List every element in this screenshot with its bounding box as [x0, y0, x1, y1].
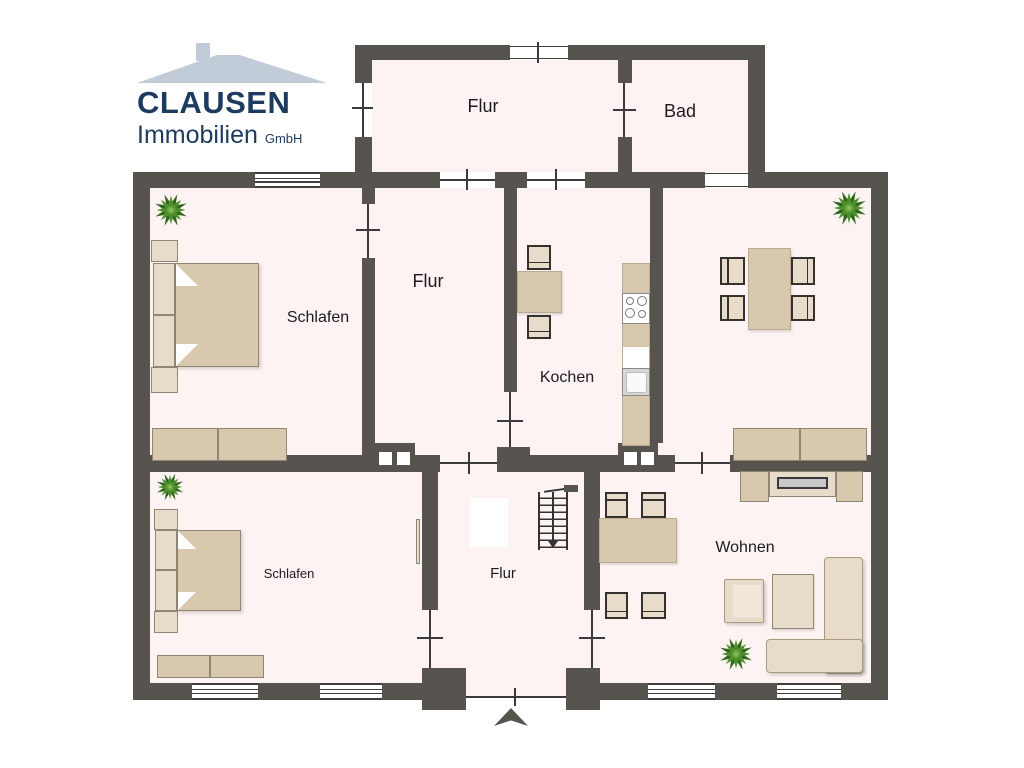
nightstand — [154, 509, 178, 530]
plant-icon — [155, 472, 185, 502]
bed-pillow — [153, 315, 175, 367]
wall-segment — [530, 455, 618, 472]
door-tick — [613, 109, 636, 111]
sideboard — [800, 428, 867, 461]
wall-segment — [658, 455, 675, 472]
chimney-flue — [641, 452, 654, 465]
window — [255, 172, 320, 188]
kitchen-chair — [527, 245, 551, 270]
armchair — [724, 579, 764, 623]
stove — [622, 293, 650, 324]
room-label-schlafen-bottom: Schlafen — [249, 566, 329, 581]
wall-segment — [355, 45, 510, 60]
radiator — [416, 519, 420, 564]
sofa-l-horizontal — [766, 639, 863, 673]
dining-chair — [720, 257, 745, 285]
logo-brand-line: Immobilien GmbH — [137, 121, 302, 150]
chimney-flue — [624, 452, 637, 465]
logo-suffix-text: GmbH — [265, 131, 303, 146]
wall-segment — [504, 188, 517, 392]
dining-table — [748, 248, 791, 330]
sofa-bench — [152, 428, 218, 461]
logo-roof-icon — [137, 55, 327, 83]
stairs-center-line — [552, 492, 554, 542]
sofa-bench — [210, 655, 264, 678]
plant-icon — [830, 189, 868, 227]
dining-chair — [791, 257, 815, 285]
wall-segment — [258, 683, 320, 700]
nightstand — [151, 240, 178, 262]
room-label-flur-bottom: Flur — [480, 565, 526, 582]
sideboard — [733, 428, 800, 461]
bed-pillow — [155, 570, 177, 611]
wall-segment — [748, 172, 888, 188]
nightstand — [154, 611, 178, 633]
room-label-flur-top: Flur — [438, 96, 528, 117]
wall-segment — [355, 137, 372, 172]
room-label-bad: Bad — [650, 101, 710, 122]
wall-segment — [584, 472, 600, 610]
chimney-flue — [397, 452, 410, 465]
door-tick — [468, 452, 470, 474]
door-tick — [579, 637, 605, 639]
floor-plan-page: CLAUSEN Immobilien GmbH Flur Bad — [0, 0, 1024, 768]
tv-cabinet — [740, 471, 769, 502]
wall-segment — [362, 258, 375, 455]
plant-icon — [153, 192, 189, 228]
wall-junction — [497, 447, 530, 472]
chimney-flue — [379, 452, 392, 465]
wall-segment — [133, 683, 192, 700]
wall-segment — [495, 172, 527, 188]
sink — [622, 368, 650, 396]
wall-left-outer — [133, 172, 150, 700]
door-threshold — [705, 173, 748, 187]
wall-segment — [841, 683, 888, 700]
window-tick — [537, 42, 539, 63]
wall-segment — [600, 683, 648, 700]
dining-chair — [791, 295, 815, 321]
room-label-flur-middle: Flur — [400, 271, 456, 292]
wardrobe — [470, 498, 508, 547]
bed-pillow — [153, 263, 175, 315]
wall-right-outer — [871, 172, 888, 700]
door-tick — [352, 107, 373, 109]
wall-segment — [715, 683, 777, 700]
entry-corner-block — [422, 668, 466, 710]
door-tick — [466, 169, 468, 190]
wall-segment — [618, 58, 632, 83]
door-opening — [429, 610, 431, 668]
nightstand — [151, 367, 178, 393]
sofa-bench — [157, 655, 210, 678]
wall-segment — [320, 172, 440, 188]
counter-worktop — [623, 347, 649, 368]
door-tick — [356, 229, 380, 231]
kitchen-table — [517, 271, 562, 313]
wall-segment — [415, 455, 440, 472]
wohnen-chair — [605, 592, 628, 619]
wohnen-chair — [641, 592, 666, 619]
sofa-bench — [218, 428, 287, 461]
wohnen-chair — [605, 492, 628, 518]
window — [777, 683, 841, 700]
wall-segment — [568, 45, 765, 60]
logo-brand-text: Immobilien — [137, 121, 258, 149]
bed-pillow — [155, 530, 177, 570]
wall-segment — [382, 683, 422, 700]
coffee-table — [772, 574, 814, 629]
door-tick — [417, 637, 443, 639]
wall-segment — [585, 172, 705, 188]
window — [510, 46, 568, 59]
entry-corner-block — [566, 668, 600, 710]
window — [320, 683, 382, 700]
wall-segment — [133, 172, 255, 188]
entrance-arrow-icon — [494, 708, 528, 726]
window — [648, 683, 715, 700]
door-opening — [591, 610, 593, 668]
door-tick — [701, 452, 703, 474]
wall-segment — [618, 137, 632, 172]
stairs-landing-block — [564, 485, 578, 492]
door-opening — [362, 83, 364, 137]
wall-segment — [422, 472, 438, 610]
tv-screen — [777, 477, 828, 489]
wohnen-chair — [641, 492, 666, 518]
plant-icon — [718, 636, 754, 672]
kitchen-chair — [527, 315, 551, 339]
tv-cabinet — [836, 471, 863, 502]
room-label-kochen: Kochen — [537, 369, 597, 387]
wall-segment — [650, 188, 663, 443]
wall-segment — [748, 45, 765, 172]
wohnen-dining-table — [599, 518, 677, 563]
room-label-schlafen-top: Schlafen — [270, 309, 366, 327]
dining-chair — [720, 295, 745, 321]
wall-segment — [362, 188, 375, 204]
room-label-wohnen: Wohnen — [714, 539, 776, 557]
logo-company-name: CLAUSEN — [137, 85, 290, 121]
entry-threshold — [466, 696, 566, 698]
door-tick — [497, 420, 523, 422]
wall-segment — [355, 45, 372, 83]
door-tick — [555, 169, 557, 190]
door-opening — [367, 204, 369, 258]
company-logo: CLAUSEN Immobilien GmbH — [120, 35, 340, 160]
stairs-arrow-icon — [548, 541, 558, 548]
entry-tick — [514, 688, 516, 706]
window — [192, 683, 258, 700]
